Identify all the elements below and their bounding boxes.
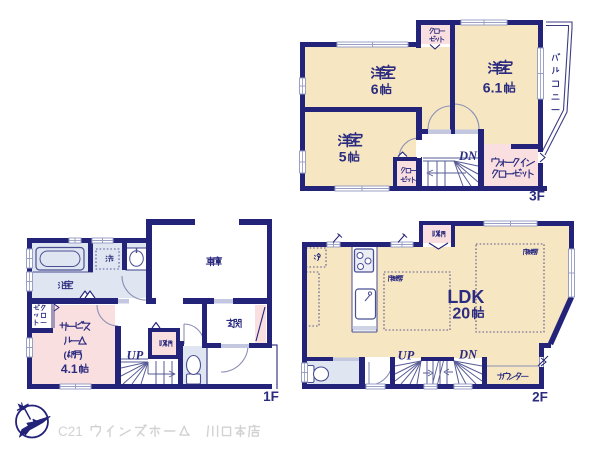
- svg-text:6: 6: [371, 81, 379, 97]
- svg-text:UP: UP: [398, 349, 415, 363]
- svg-text:DN: DN: [458, 348, 478, 362]
- svg-text:1F: 1F: [263, 389, 279, 404]
- svg-text:DN: DN: [458, 149, 478, 163]
- svg-text:C21: C21: [58, 424, 83, 439]
- svg-text:6.1: 6.1: [483, 80, 503, 96]
- svg-text:3F: 3F: [529, 189, 545, 204]
- svg-text:2F: 2F: [532, 390, 548, 405]
- svg-text:UP: UP: [127, 349, 144, 363]
- svg-text:20: 20: [452, 305, 470, 322]
- svg-text:): ): [79, 350, 82, 361]
- svg-text:LDK: LDK: [447, 287, 484, 307]
- svg-text:5: 5: [339, 149, 347, 165]
- svg-text:4.1: 4.1: [61, 362, 78, 376]
